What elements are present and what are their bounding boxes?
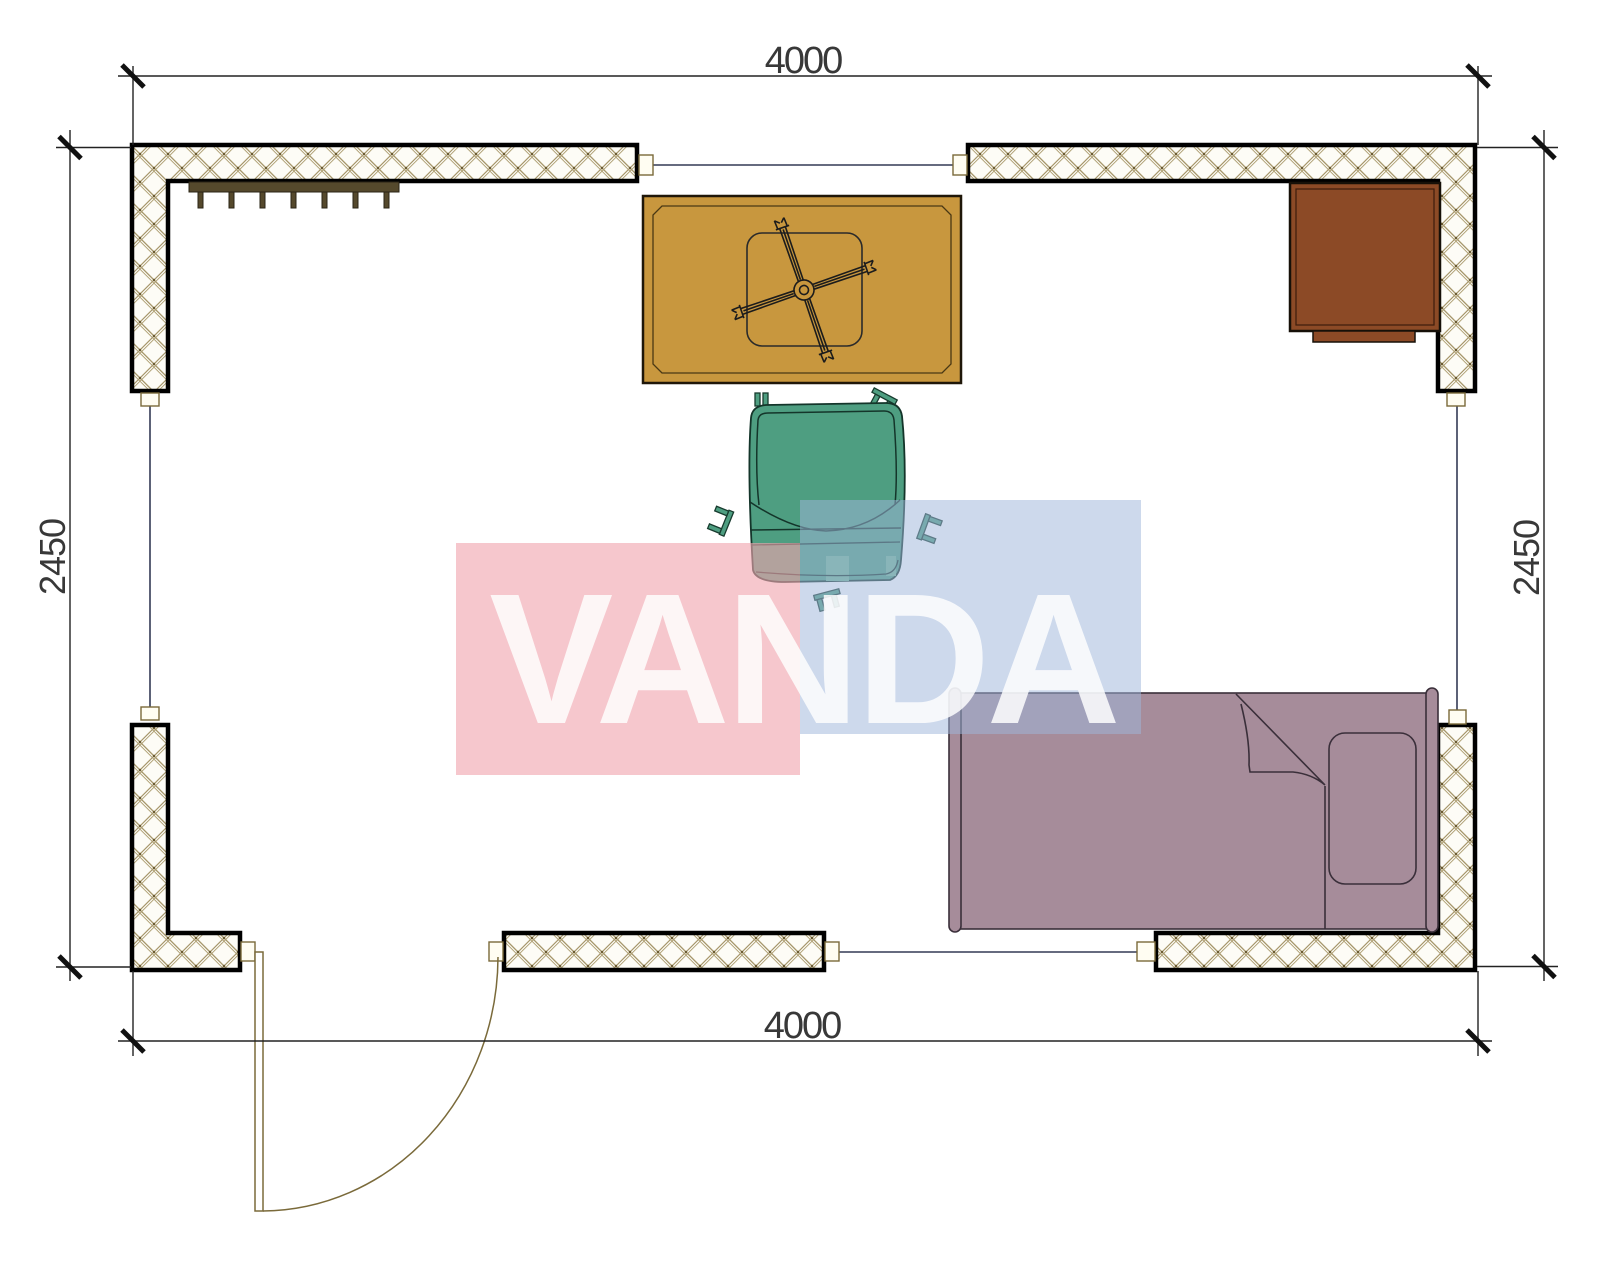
svg-text:2450: 2450 bbox=[1506, 520, 1547, 596]
svg-text:4000: 4000 bbox=[765, 40, 842, 82]
svg-text:4000: 4000 bbox=[764, 1005, 841, 1047]
svg-text:2450: 2450 bbox=[32, 519, 73, 595]
svg-text:VANDA: VANDA bbox=[489, 556, 1117, 763]
